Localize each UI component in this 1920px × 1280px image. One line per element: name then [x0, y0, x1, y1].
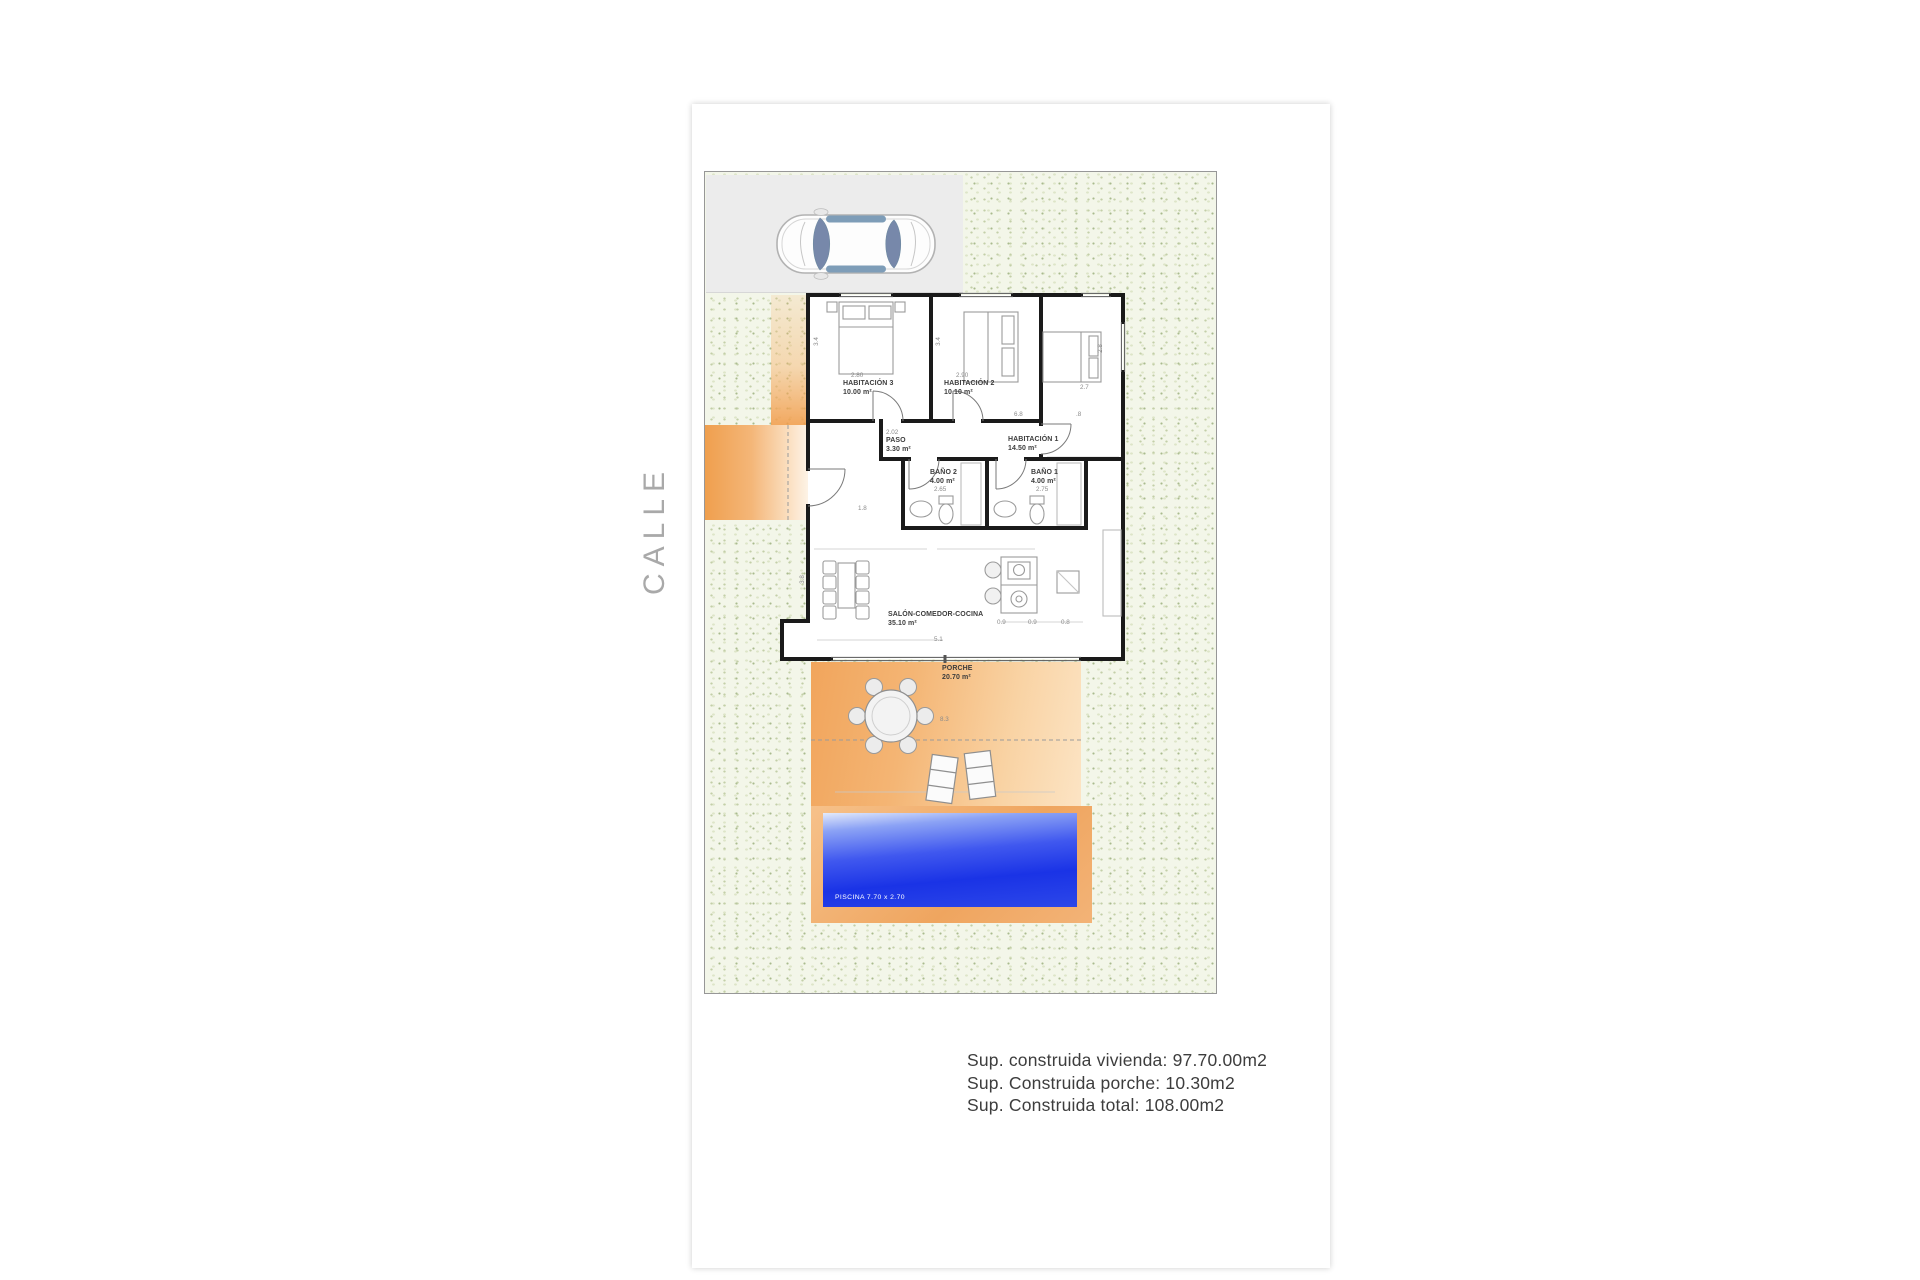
summary-line-vivienda: Sup. construida vivienda: 97.70.00m2 — [967, 1049, 1267, 1072]
dim-label: 2.8 — [1097, 344, 1104, 353]
floorplan-sheet: CALLE PISCINA 7.70 x 2.70 — [0, 0, 1920, 1280]
dim-label: 3.4 — [813, 337, 820, 346]
dim-label: 8.3 — [940, 716, 949, 723]
room-label-habitacion3: HABITACIÓN 310.00 m² — [843, 380, 893, 397]
street-label: CALLE — [638, 460, 672, 600]
dim-label: .8 — [1076, 411, 1081, 418]
room-label-habitacion1: HABITACIÓN 114.50 m² — [1008, 436, 1058, 453]
room-label-habitacion2: HABITACIÓN 210.10 m² — [944, 380, 994, 397]
dim-label: 6.8 — [1014, 411, 1023, 418]
room-label-bano2: BAÑO 24.00 m² — [930, 469, 957, 486]
dim-label: 0.9 — [1028, 619, 1037, 626]
dim-label: 2.02 — [886, 429, 898, 436]
plot-garden: PISCINA 7.70 x 2.70 — [704, 171, 1217, 994]
room-label-salon: SALÓN-COMEDOR-COCINA35.10 m² — [888, 611, 983, 628]
dim-label: 2.90 — [956, 372, 968, 379]
dim-label: 2.75 — [1036, 486, 1048, 493]
room-label-bano1: BAÑO 14.00 m² — [1031, 469, 1058, 486]
dim-label: 0.8 — [1061, 619, 1070, 626]
room-label-paso: PASO3.30 m² — [886, 437, 911, 454]
built-area-summary: Sup. construida vivienda: 97.70.00m2 Sup… — [967, 1049, 1267, 1117]
dim-label: 2.80 — [851, 372, 863, 379]
summary-line-porche: Sup. Construida porche: 10.30m2 — [967, 1072, 1267, 1095]
dim-label: 2.7 — [1080, 384, 1089, 391]
floorplan-drawing — [705, 172, 1216, 993]
porch-furniture — [849, 679, 996, 804]
dim-label: 2.65 — [934, 486, 946, 493]
sun-loungers — [926, 751, 996, 804]
summary-line-total: Sup. Construida total: 108.00m2 — [967, 1094, 1267, 1117]
dim-label: 1.8 — [858, 505, 867, 512]
room-label-porche: PORCHE20.70 m² — [942, 665, 973, 682]
dim-label: 0.9 — [997, 619, 1006, 626]
dim-label: 3.4 — [935, 337, 942, 346]
dim-label: 5.1 — [934, 636, 943, 643]
dim-label: 3.8 — [799, 575, 806, 584]
